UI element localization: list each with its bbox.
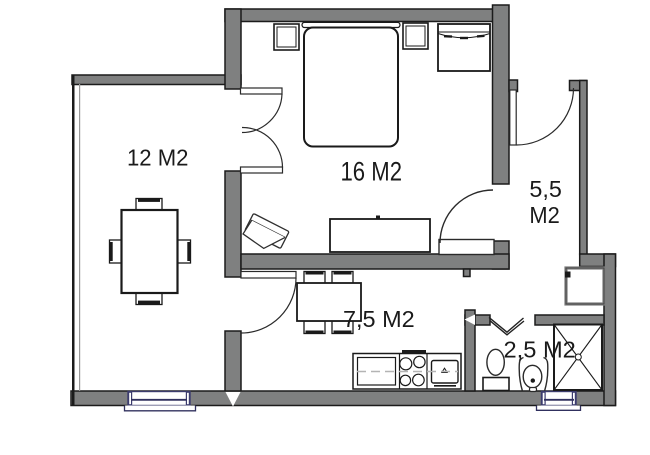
svg-text:2,5 M2: 2,5 M2 <box>504 337 576 363</box>
svg-text:16 M2: 16 M2 <box>341 157 403 187</box>
svg-text:5,5: 5,5 <box>529 176 562 202</box>
svg-text:12 M2: 12 M2 <box>127 145 189 171</box>
svg-text:7,5 M2: 7,5 M2 <box>343 306 415 332</box>
svg-text:M2: M2 <box>529 202 559 228</box>
